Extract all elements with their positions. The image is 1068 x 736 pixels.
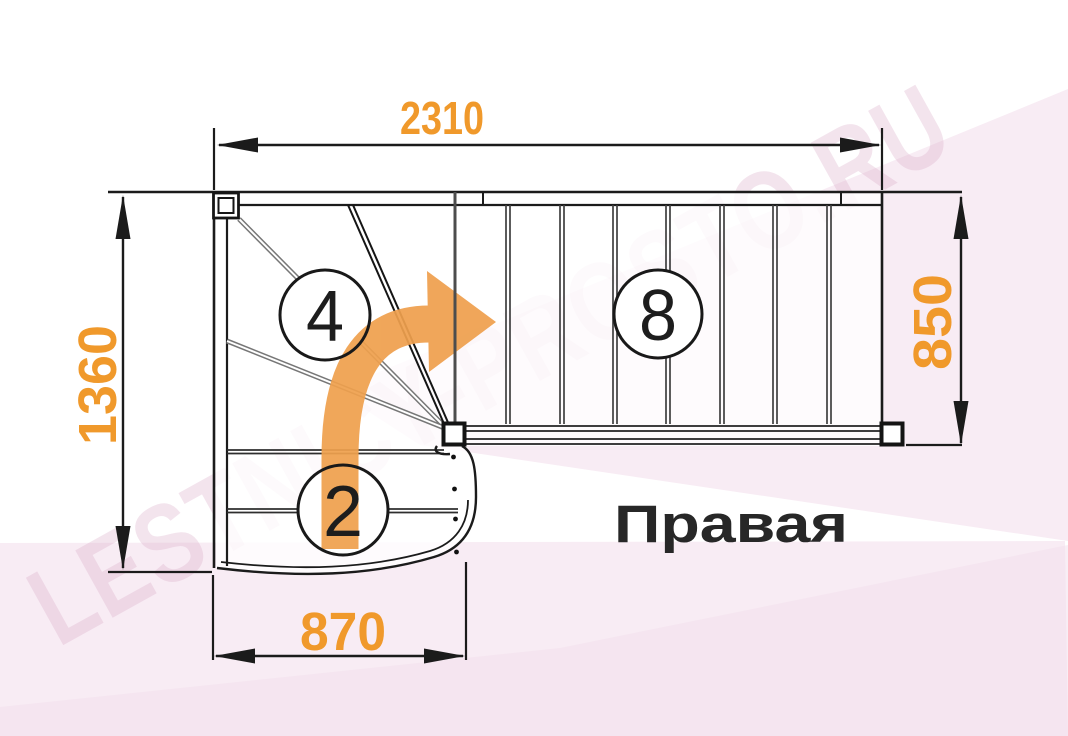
winder-count-label: 4 bbox=[306, 277, 344, 357]
dimension-bottom-value: 870 bbox=[300, 602, 386, 662]
corner-post bbox=[444, 424, 465, 445]
staircase-plan-drawing: LESTNICY-PROSTO.RU bbox=[0, 0, 1068, 736]
dimension-left-value: 1360 bbox=[68, 325, 128, 445]
baluster-dot bbox=[453, 517, 458, 522]
orientation-label: Правая bbox=[614, 495, 848, 554]
staircase-plan-page: LESTNICY-PROSTO.RU bbox=[0, 0, 1068, 736]
dimension-right-value: 850 bbox=[903, 274, 963, 370]
straight-count-label: 8 bbox=[639, 276, 677, 356]
bottom-count-label: 2 bbox=[323, 472, 363, 552]
arrowhead-left bbox=[217, 138, 258, 153]
baluster-dot bbox=[452, 487, 457, 492]
arrowhead-up bbox=[116, 195, 131, 239]
baluster-dot bbox=[451, 455, 456, 460]
right-end-post bbox=[882, 424, 903, 445]
dimension-top-value: 2310 bbox=[400, 92, 484, 144]
baluster-dot bbox=[454, 550, 459, 555]
top-left-post bbox=[214, 193, 239, 218]
